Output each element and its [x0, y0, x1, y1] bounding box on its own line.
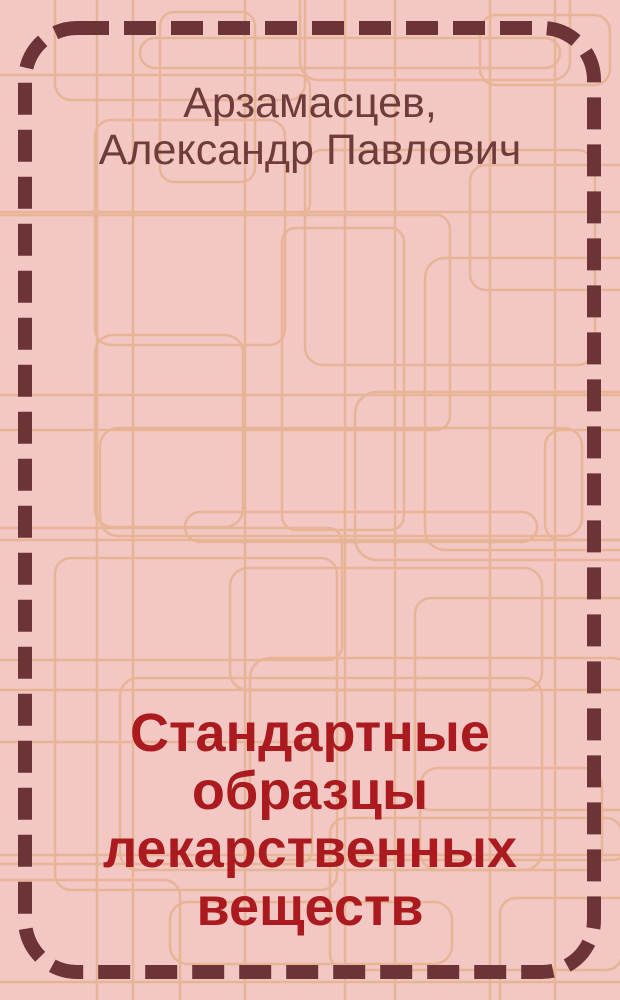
title-line: образцы	[0, 762, 620, 820]
book-cover: Арзамасцев, Александр Павлович Стандартн…	[0, 0, 620, 1000]
author-name: Арзамасцев, Александр Павлович	[0, 80, 620, 174]
author-line: Арзамасцев,	[0, 80, 620, 127]
title-line: Стандартные	[0, 704, 620, 762]
book-title: Стандартные образцы лекарственных вещест…	[0, 704, 620, 936]
author-line: Александр Павлович	[0, 127, 620, 174]
title-line: веществ	[0, 878, 620, 936]
title-line: лекарственных	[0, 820, 620, 878]
